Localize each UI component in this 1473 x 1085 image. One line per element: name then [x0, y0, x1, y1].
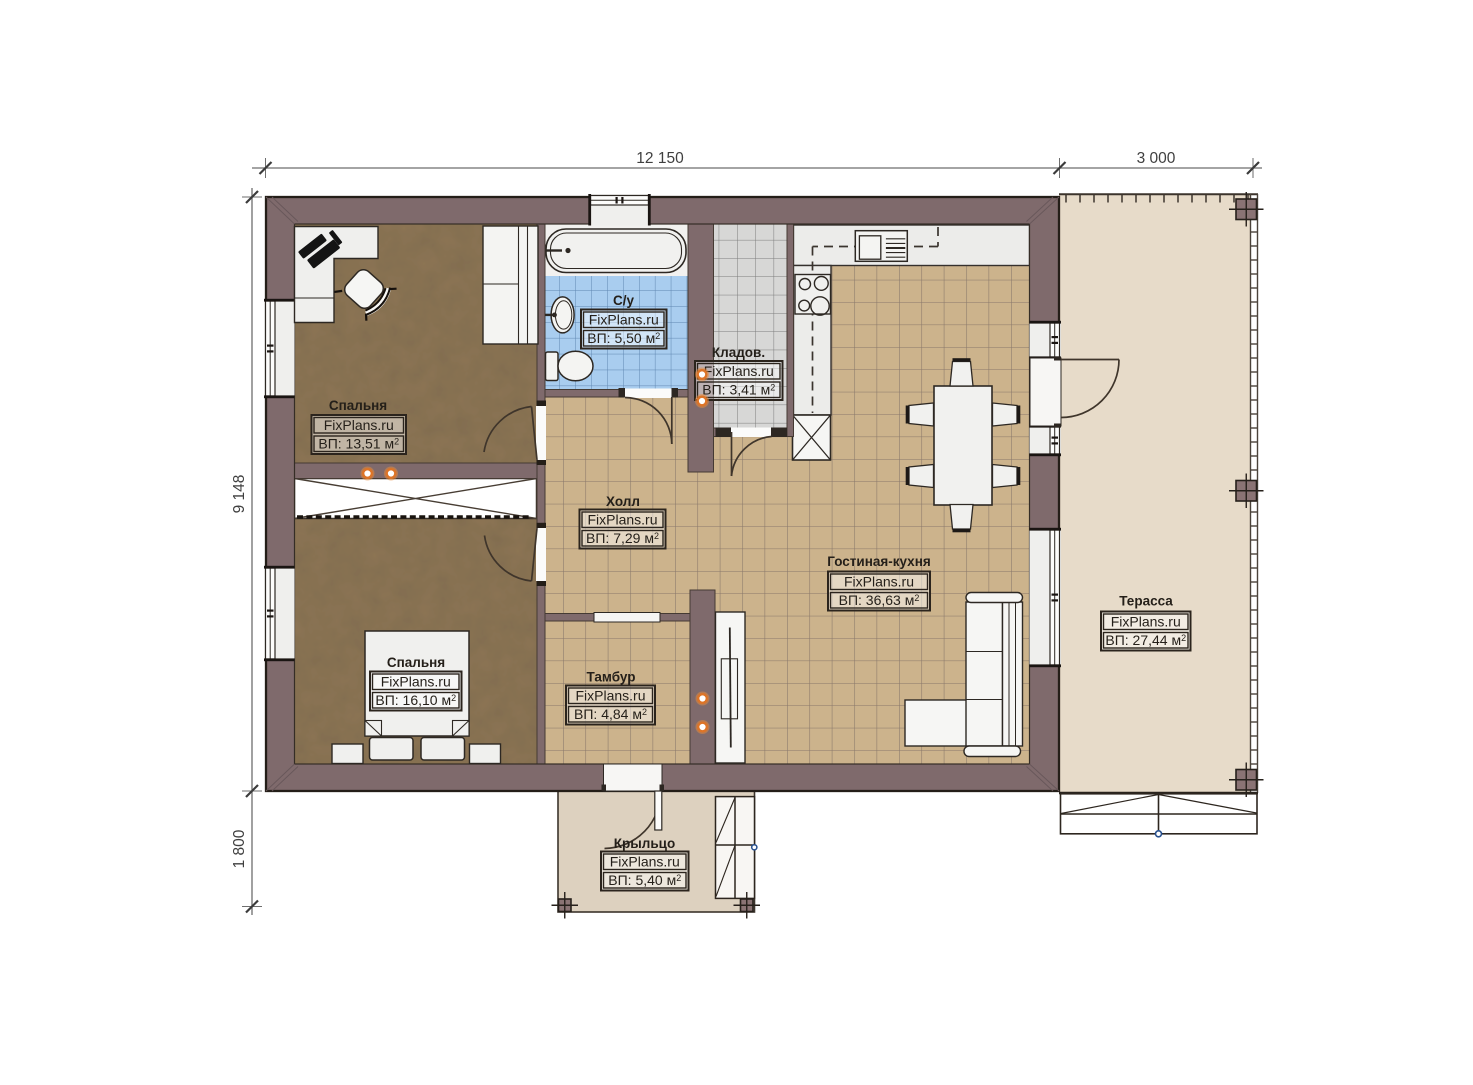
svg-text:Терасса: Терасса — [1119, 594, 1173, 609]
svg-text:FixPlans.ru: FixPlans.ru — [589, 312, 659, 328]
svg-text:ВП: 27,44 м2: ВП: 27,44 м2 — [1105, 632, 1186, 648]
svg-text:FixPlans.ru: FixPlans.ru — [575, 688, 645, 704]
svg-text:12 150: 12 150 — [636, 150, 684, 167]
svg-text:ВП: 7,29 м2: ВП: 7,29 м2 — [586, 530, 659, 546]
svg-text:9 148: 9 148 — [231, 475, 248, 514]
svg-text:3 000: 3 000 — [1137, 150, 1176, 167]
svg-text:FixPlans.ru: FixPlans.ru — [704, 363, 774, 379]
svg-text:С/у: С/у — [613, 293, 635, 308]
svg-text:ВП: 36,63 м2: ВП: 36,63 м2 — [839, 592, 920, 608]
svg-text:ВП: 5,40 м2: ВП: 5,40 м2 — [608, 872, 681, 888]
svg-text:ВП: 4,84 м2: ВП: 4,84 м2 — [574, 706, 647, 722]
svg-text:FixPlans.ru: FixPlans.ru — [610, 854, 680, 870]
svg-text:Гостиная-кухня: Гостиная-кухня — [827, 554, 930, 569]
svg-text:ВП: 5,50 м2: ВП: 5,50 м2 — [587, 330, 660, 346]
svg-text:ВП: 16,10 м2: ВП: 16,10 м2 — [375, 692, 456, 708]
svg-text:Спальня: Спальня — [329, 398, 387, 413]
svg-text:FixPlans.ru: FixPlans.ru — [324, 417, 394, 433]
svg-text:FixPlans.ru: FixPlans.ru — [1111, 614, 1181, 630]
svg-text:ВП: 13,51 м2: ВП: 13,51 м2 — [318, 436, 399, 452]
svg-text:Тамбур: Тамбур — [587, 670, 636, 685]
svg-text:FixPlans.ru: FixPlans.ru — [587, 512, 657, 528]
svg-text:Холл: Холл — [606, 494, 640, 509]
svg-text:Спальня: Спальня — [387, 655, 445, 670]
svg-text:Крыльцо: Крыльцо — [614, 836, 675, 851]
svg-text:Кладов.: Кладов. — [712, 345, 765, 360]
svg-text:FixPlans.ru: FixPlans.ru — [844, 574, 914, 590]
svg-text:FixPlans.ru: FixPlans.ru — [381, 674, 451, 690]
svg-text:1 800: 1 800 — [231, 829, 248, 868]
svg-text:ВП: 3,41 м2: ВП: 3,41 м2 — [702, 382, 775, 398]
